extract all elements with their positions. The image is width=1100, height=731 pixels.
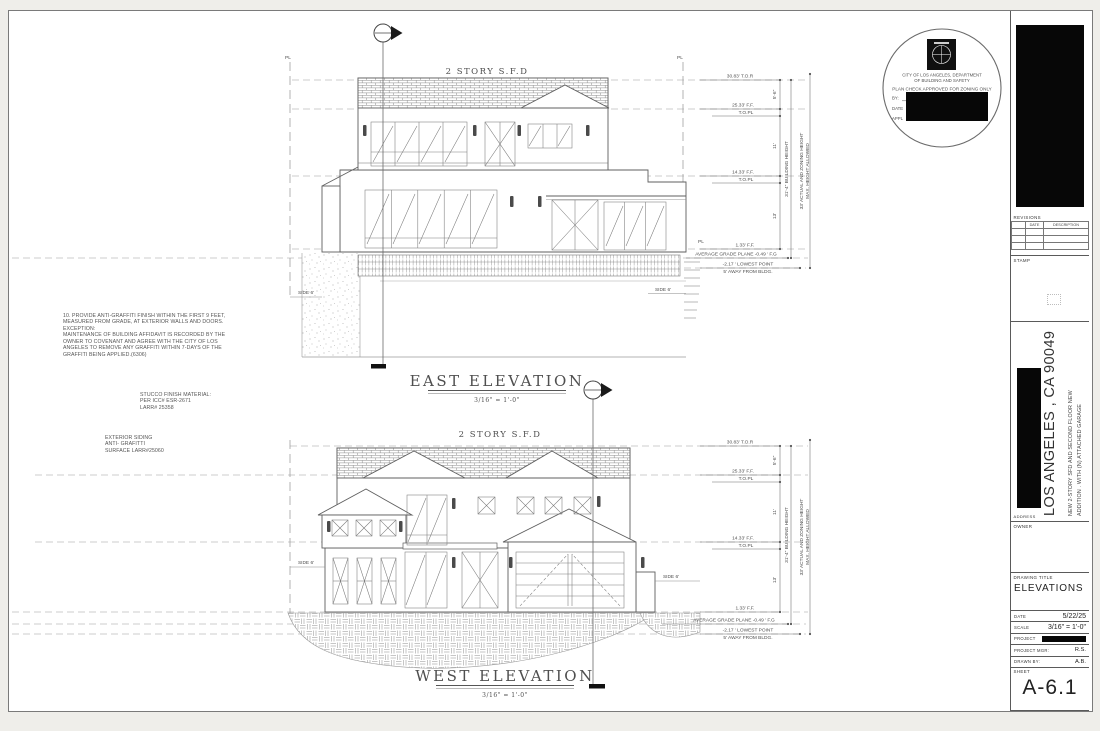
west-dimensions: 30.83' T.O.R 25.33' F.F. T.O.PL 14.33' F… <box>662 439 811 641</box>
west-story-label: 2 STORY S.F.D <box>459 430 542 440</box>
svg-text:13': 13' <box>772 213 778 219</box>
address-city: LOS ANGELES , CA 90049 <box>1042 360 1058 516</box>
sheet-section: SHEET A-6.1 <box>1011 667 1089 704</box>
east-story-label: 2 STORY S.F.D <box>446 67 529 77</box>
svg-text:-2.17 ' LOWEST POINT: -2.17 ' LOWEST POINT <box>723 628 774 634</box>
drawing-title-section: DRAWING TITLE ELEVATIONS <box>1011 572 1089 610</box>
east-pl-label-left: PL <box>285 55 291 61</box>
svg-text:11': 11' <box>772 509 778 515</box>
svg-text:DATE: DATE <box>892 106 903 111</box>
svg-text:5'-6": 5'-6" <box>772 455 778 465</box>
sheet-number: A-6.1 <box>1011 676 1089 700</box>
owner-section: OWNER <box>1011 521 1089 572</box>
sheet-label: SHEET <box>1011 668 1089 675</box>
svg-text:30.83' T.O.R: 30.83' T.O.R <box>727 440 754 446</box>
stamp-label: STAMP <box>1011 256 1089 263</box>
stamp-mark <box>1047 294 1061 305</box>
svg-text:-2.17 ' LOWEST POINT: -2.17 ' LOWEST POINT <box>723 262 774 268</box>
svg-text:T.O.PL: T.O.PL <box>739 543 754 549</box>
la-city-seal-icon <box>927 39 956 70</box>
svg-text:31'-4" BUILDING HEIGHT: 31'-4" BUILDING HEIGHT <box>784 141 790 197</box>
scale-value: 3/16" = 1'-0" <box>1048 624 1086 631</box>
svg-text:SIDE 6': SIDE 6' <box>298 560 314 566</box>
svg-text:1.33' F.F.: 1.33' F.F. <box>735 606 754 612</box>
svg-text:14.33' F.F.: 14.33' F.F. <box>732 170 754 176</box>
revisions-row <box>1012 235 1089 242</box>
drawn-by-value: A.B. <box>1075 659 1086 665</box>
project-mgr-row: PROJECT MGR: R.S. <box>1011 644 1089 655</box>
svg-text:SIDE 6': SIDE 6' <box>655 287 671 293</box>
note-stucco: STUCCO FINISH MATERIAL: PER ICC# ESR-267… <box>140 392 211 411</box>
svg-text:25.33' F.F.: 25.33' F.F. <box>732 103 754 109</box>
revisions-desc-col: DESCRIPTION <box>1044 221 1089 228</box>
svg-text:WEST ELEVATION: WEST ELEVATION <box>415 667 594 685</box>
revisions-row <box>1012 228 1089 235</box>
svg-text:T.O.PL: T.O.PL <box>739 110 754 116</box>
svg-text:EAST ELEVATION: EAST ELEVATION <box>410 372 585 390</box>
project-description-line2: ADDITION . WITH (N) ATTACHED GARAGE <box>1077 332 1083 516</box>
east-pl-label-right2: PL <box>698 239 704 245</box>
approval-stamp: CITY OF LOS ANGELES, DEPARTMENT OF BUILD… <box>883 29 1001 147</box>
svg-text:5' AWAY FROM BLDG.: 5' AWAY FROM BLDG. <box>723 269 772 275</box>
project-description-line1: NEW 2-STORY SFD AND SECOND FLOOR NEW <box>1068 332 1074 516</box>
stamp-section: STAMP <box>1011 255 1089 321</box>
svg-text:BY:: BY: <box>892 96 899 101</box>
svg-text:5' AWAY FROM BLDG.: 5' AWAY FROM BLDG. <box>723 635 772 641</box>
svg-text:31'-4" BUILDING HEIGHT: 31'-4" BUILDING HEIGHT <box>784 507 790 563</box>
note-siding: EXTERIOR SIDING ANTI- GRAFITTI SURFACE L… <box>105 435 164 454</box>
stamp-redaction-box <box>906 92 988 121</box>
west-title: WEST ELEVATION 3/16" = 1'-0" <box>415 667 594 699</box>
svg-text:T.O.PL: T.O.PL <box>739 476 754 482</box>
address-section: LOS ANGELES , CA 90049 NEW 2-STORY SFD A… <box>1011 321 1089 521</box>
project-redaction-bar <box>1042 636 1086 642</box>
revisions-section: REVISIONS DATE DESCRIPTION <box>1011 213 1089 255</box>
drawing-title-label: DRAWING TITLE <box>1011 573 1089 580</box>
svg-text:APPL: APPL <box>892 116 904 121</box>
svg-text:OF BUILDING AND SAFETY: OF BUILDING AND SAFETY <box>914 78 970 83</box>
svg-text:MAX. HEIGHT ALLOWED: MAX. HEIGHT ALLOWED <box>805 509 811 565</box>
svg-text:33' ACTUAL AND ZONING HEIGHT: 33' ACTUAL AND ZONING HEIGHT <box>799 133 805 210</box>
svg-text:3/16" = 1'-0": 3/16" = 1'-0" <box>482 692 528 699</box>
title-block: REVISIONS DATE DESCRIPTION STAMP LOS ANG… <box>1010 11 1089 711</box>
svg-text:5'-6": 5'-6" <box>772 89 778 99</box>
drawing-title: ELEVATIONS <box>1014 583 1089 594</box>
east-dimensions: 30.83' T.O.R 25.33' F.F. T.O.PL 14.33' F… <box>686 73 811 275</box>
scale-row: SCALE 3/16" = 1'-0" <box>1011 621 1089 632</box>
west-grade <box>288 613 700 668</box>
project-row: PROJECT <box>1011 633 1089 644</box>
svg-text:11': 11' <box>772 143 778 149</box>
svg-text:13': 13' <box>772 577 778 583</box>
west-elevation: 2 STORY S.F.D SIDE 6' SIDE 6' <box>12 381 811 699</box>
svg-text:AVERAGE GRADE PLANE -0.49 ' F.: AVERAGE GRADE PLANE -0.49 ' F.G <box>695 252 777 258</box>
svg-text:SIDE 6': SIDE 6' <box>298 290 314 296</box>
svg-text:1.33' F.F.: 1.33' F.F. <box>735 243 754 249</box>
west-balcony-slab <box>403 543 497 549</box>
east-grade <box>302 253 700 357</box>
revisions-date-col: DATE <box>1026 221 1044 228</box>
owner-label: OWNER <box>1011 522 1089 529</box>
date-row: DATE 5/22/25 <box>1011 610 1089 621</box>
elevation-drawings: PL PL PL 2 STORY S.F.D SIDE 6' SIDE 6' <box>0 0 1100 731</box>
project-mgr-value: R.S. <box>1075 647 1086 653</box>
svg-text:33' ACTUAL AND ZONING HEIGHT: 33' ACTUAL AND ZONING HEIGHT <box>799 499 805 576</box>
svg-text:PLAN CHECK APPROVED FOR ZONING: PLAN CHECK APPROVED FOR ZONING ONLY <box>892 87 991 92</box>
svg-text:3/16" = 1'-0": 3/16" = 1'-0" <box>474 397 520 404</box>
note-anti-graffiti: 10. PROVIDE ANTI-GRAFFITI FINISH WITHIN … <box>63 313 239 358</box>
revisions-row <box>1012 242 1089 249</box>
svg-text:25.33' F.F.: 25.33' F.F. <box>732 469 754 475</box>
svg-text:14.33' F.F.: 14.33' F.F. <box>732 536 754 542</box>
svg-text:CITY OF LOS ANGELES, DEPARTMEN: CITY OF LOS ANGELES, DEPARTMENT <box>902 73 982 78</box>
east-title: EAST ELEVATION 3/16" = 1'-0" <box>410 372 585 404</box>
date-value: 5/22/25 <box>1063 613 1086 620</box>
logo-redaction-box <box>1016 25 1084 207</box>
drawn-by-row: DRAWN BY: A.B. <box>1011 656 1089 667</box>
svg-text:MAX. HEIGHT ALLOWED: MAX. HEIGHT ALLOWED <box>805 143 811 199</box>
address-label: ADDRESS <box>1014 514 1036 519</box>
svg-text:T.O.PL: T.O.PL <box>739 177 754 183</box>
revisions-table: DATE DESCRIPTION <box>1011 221 1089 250</box>
revisions-label: REVISIONS <box>1011 213 1089 220</box>
address-redaction-box <box>1017 368 1041 508</box>
svg-text:SIDE 6': SIDE 6' <box>663 574 679 580</box>
svg-text:AVERAGE GRADE PLANE -0.49 ' F.: AVERAGE GRADE PLANE -0.49 ' F.G <box>693 618 775 624</box>
svg-text:30.83' T.O.R: 30.83' T.O.R <box>727 74 754 80</box>
east-pl-label-right: PL <box>677 55 683 61</box>
